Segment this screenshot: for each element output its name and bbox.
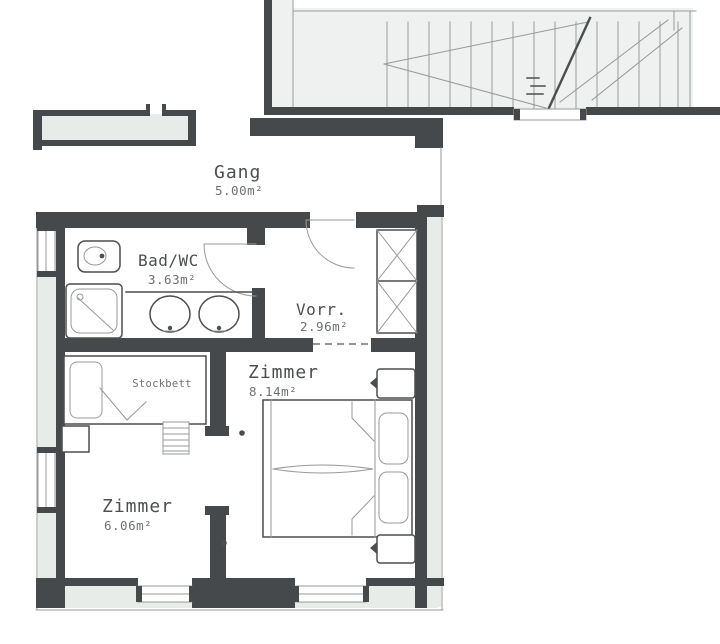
left-wall-fill (38, 228, 56, 578)
threshold-end-right (580, 109, 586, 120)
corridor-wall-notch-b (162, 104, 166, 116)
corridor-wall-cap-left (33, 110, 42, 150)
door-hinge-dot-lower (221, 540, 227, 546)
bath-vorraum-divider (252, 288, 265, 352)
room-label-vorraum: Vorr. (296, 300, 347, 319)
room-area-zimmer-left: 6.06m² (104, 518, 152, 533)
bedroom-divider-upper (210, 352, 226, 430)
door-hinge-dot-upper (239, 430, 245, 436)
shaft-bottom-stub (371, 338, 417, 352)
stairwell-bottom-wall-left (264, 107, 514, 115)
right-wall-fill (427, 217, 441, 607)
nightstand-bottom (377, 535, 415, 563)
room-label-zimmer-left: Zimmer (102, 496, 173, 517)
top-right-notch (417, 205, 444, 217)
nightstand-bottom-knob (370, 542, 377, 554)
corridor-wall-bottom (42, 140, 194, 146)
entrance-door-swing-arc (306, 220, 354, 268)
threshold-end-left (514, 109, 520, 120)
room-area-bad-wc: 3.63m² (148, 272, 196, 287)
corridor-wall-notch-a (146, 104, 150, 116)
landing-wall (250, 118, 417, 136)
window-left-lower-cap-bottom (37, 507, 56, 513)
room-area-gang: 5.00m² (215, 183, 263, 198)
top-wall-right (356, 212, 417, 228)
window-bottom-left-cap-a (136, 586, 142, 602)
bottom-wall-inner-a (56, 578, 138, 586)
sink-right-drain (217, 326, 221, 330)
landing-wall-notch (415, 118, 443, 148)
floor-plan: Gang 5.00m² Bad/WC 3.63m² Vorr. 2.96m² Z… (0, 0, 720, 644)
sink-left-drain (168, 326, 172, 330)
corridor-wall-cap-right (188, 110, 196, 146)
window-left-lower-cap-top (37, 447, 56, 453)
window-bottom-right-cap-a (293, 586, 299, 602)
nightstand-left (62, 426, 89, 452)
room-area-vorraum: 2.96m² (300, 319, 348, 334)
room-label-zimmer-right: Zimmer (248, 362, 319, 383)
bedroom-divider-upper-cap (205, 426, 229, 436)
nightstand-top-knob (370, 377, 377, 389)
bunk-bed (62, 356, 206, 454)
top-wall-left (36, 212, 310, 228)
pillow-bottom (379, 472, 408, 523)
bottom-wall-inner-c (366, 578, 444, 586)
stairwell (264, 0, 720, 120)
pillow-top (379, 413, 408, 464)
toilet-drain (100, 254, 105, 259)
stairwell-wall-fill (271, 0, 293, 110)
bunk-bed-frame (64, 356, 206, 424)
corridor-wall-top-a (42, 110, 148, 116)
stairwell-left-wall (264, 0, 272, 113)
stairwell-floor (293, 8, 693, 110)
window-bottom-right-cap-b (363, 586, 369, 602)
room-label-gang: Gang (214, 162, 261, 183)
room-label-bad-wc: Bad/WC (138, 251, 199, 270)
bunk-bed-ladder (163, 422, 189, 454)
nightstand-top (377, 369, 415, 398)
bottom-wall-inner-b (192, 578, 295, 608)
bedroom-divider-lower-cap (205, 506, 229, 515)
wardrobe-shaft (377, 230, 417, 333)
bath-bottom-wall (56, 338, 313, 352)
bottom-left-corner (36, 578, 65, 608)
bath-door-jamb (247, 228, 265, 245)
window-left-upper-cap-top (37, 225, 56, 231)
bunk-bed-label: Stockbett (132, 378, 192, 390)
stairwell-bottom-wall-right (586, 107, 720, 115)
corridor-wall-fill (36, 114, 194, 144)
window-left-upper-cap-bottom (37, 271, 56, 277)
bath-door-swing-arc (204, 244, 256, 296)
room-area-zimmer-right: 8.14m² (249, 384, 297, 399)
floor-plan-drawing: Gang 5.00m² Bad/WC 3.63m² Vorr. 2.96m² Z… (0, 0, 720, 644)
stairwell-door-threshold (514, 109, 586, 120)
window-bottom-left-cap-b (189, 586, 195, 602)
